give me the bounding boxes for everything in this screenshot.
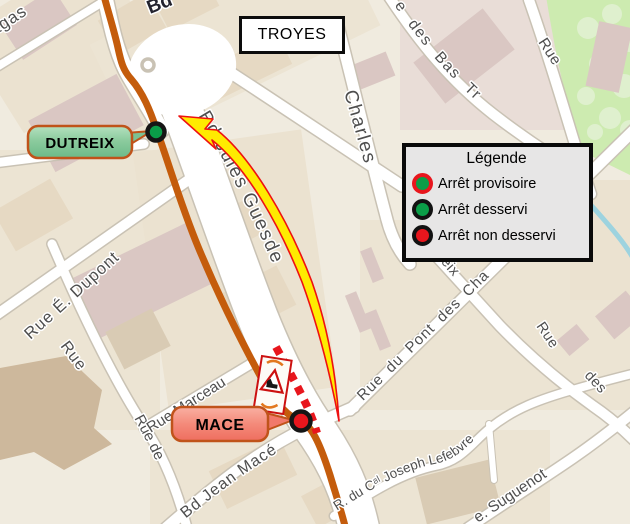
provisional-stop-icon xyxy=(412,173,433,194)
legend-title: Légende xyxy=(412,150,581,168)
stop-marker-mace xyxy=(292,412,311,431)
city-label: TROYES xyxy=(258,26,327,44)
stop-name-dutreix: DUTREIX xyxy=(45,135,114,152)
not-served-stop-icon xyxy=(412,225,433,246)
roundabout xyxy=(142,59,154,71)
map-canvas: agas Bd Charles e des Bas Tr Rue Bd Jule… xyxy=(0,0,630,524)
legend-label: Arrêt non desservi xyxy=(438,228,556,244)
stop-marker-dutreix xyxy=(148,124,165,141)
served-stop-icon xyxy=(412,199,433,220)
legend-label: Arrêt provisoire xyxy=(438,176,536,192)
legend: Légende Arrêt provisoire Arrêt desservi … xyxy=(402,143,593,262)
legend-item-provisional: Arrêt provisoire xyxy=(412,173,581,194)
legend-item-not-served: Arrêt non desservi xyxy=(412,225,581,246)
legend-label: Arrêt desservi xyxy=(438,202,527,218)
legend-item-served: Arrêt desservi xyxy=(412,199,581,220)
stop-name-mace: MACE xyxy=(195,417,244,434)
map-svg: agas Bd Charles e des Bas Tr Rue Bd Jule… xyxy=(0,0,630,524)
city-label-box: TROYES xyxy=(239,16,345,54)
